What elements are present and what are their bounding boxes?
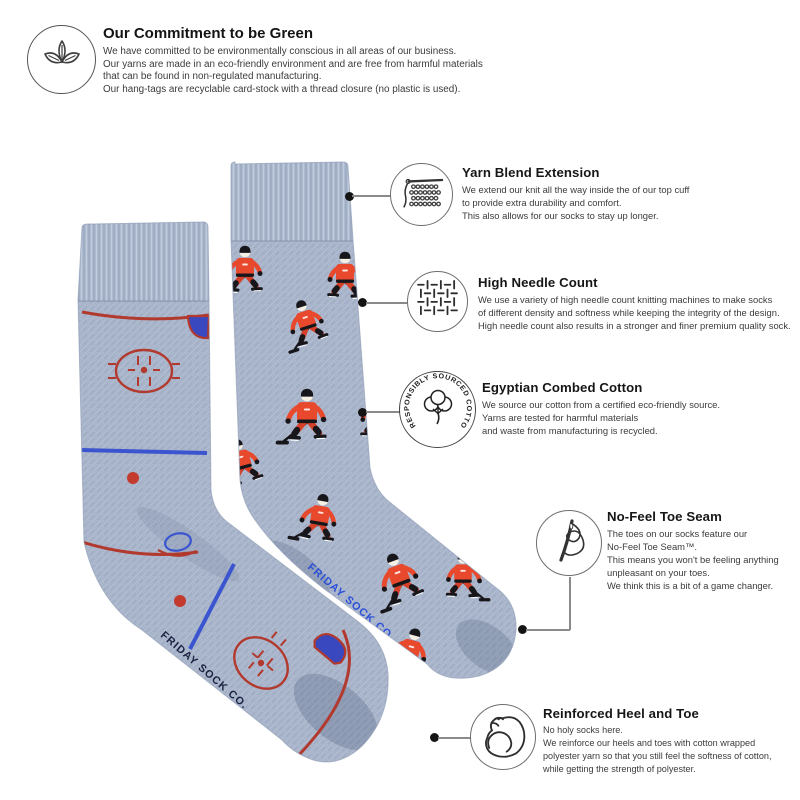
callout-title: High Needle Count <box>478 275 798 291</box>
left-sock-cuff <box>76 218 212 301</box>
callout-body: We use a variety of high needle count kn… <box>478 293 798 332</box>
connector-line <box>366 411 401 413</box>
callout-high-needle-count: High Needle Count We use a variety of hi… <box>478 275 798 332</box>
callout-title: Egyptian Combed Cotton <box>482 380 792 396</box>
rink-foot-faceoff-dot <box>174 595 186 607</box>
callout-egyptian-combed-cotton: Egyptian Combed Cotton We source our cot… <box>482 380 792 437</box>
green-commitment-section: Our Commitment to be Green We have commi… <box>103 25 523 97</box>
green-commitment-body: We have committed to be environmentally … <box>103 46 523 97</box>
leaf-sprout-icon <box>38 33 86 86</box>
sock-feature-infographic: Our Commitment to be Green We have commi… <box>0 0 800 800</box>
right-sock-cuff <box>229 156 355 241</box>
callout-icon-circle <box>407 271 468 332</box>
callout-body: We source our cotton from a certified ec… <box>482 398 792 437</box>
callout-reinforced-heel-and-toe: Reinforced Heel and Toe No holy socks he… <box>543 706 793 776</box>
cotton-boll-badge-icon: RESPONSIBLY SOURCED COTTON <box>401 370 475 449</box>
connector-line <box>366 302 407 304</box>
callout-body: No holy socks here. We reinforce our hee… <box>543 724 793 776</box>
connector-line <box>352 195 391 197</box>
socks-illustration: FRIDAY SOCK CO. <box>30 148 550 796</box>
knitting-yarn-icon <box>399 169 445 220</box>
hockey-player-icon <box>360 393 402 439</box>
callout-icon-circle <box>536 510 602 576</box>
callout-icon-circle <box>470 704 536 770</box>
callout-title: No-Feel Toe Seam <box>607 509 797 525</box>
callout-icon-circle: RESPONSIBLY SOURCED COTTON <box>399 371 476 448</box>
knit-stitch-grid-icon <box>417 280 459 323</box>
connector-line <box>526 629 570 631</box>
callout-body: The toes on our socks feature our No-Fee… <box>607 527 797 592</box>
callout-title: Yarn Blend Extension <box>462 165 797 181</box>
connector-line <box>569 577 571 630</box>
callout-yarn-blend-extension: Yarn Blend Extension We extend our knit … <box>462 165 797 222</box>
callout-title: Reinforced Heel and Toe <box>543 706 793 722</box>
callout-icon-circle <box>390 163 453 226</box>
green-commitment-title: Our Commitment to be Green <box>103 25 523 43</box>
flexed-bicep-icon <box>479 711 527 764</box>
callout-no-feel-toe-seam: No-Feel Toe Seam The toes on our socks f… <box>607 509 797 592</box>
connector-line <box>438 737 472 739</box>
green-commitment-icon-circle <box>27 25 96 94</box>
rink-faceoff-dot <box>127 472 139 484</box>
needle-thread-icon <box>545 517 593 570</box>
callout-body: We extend our knit all the way inside th… <box>462 183 797 222</box>
